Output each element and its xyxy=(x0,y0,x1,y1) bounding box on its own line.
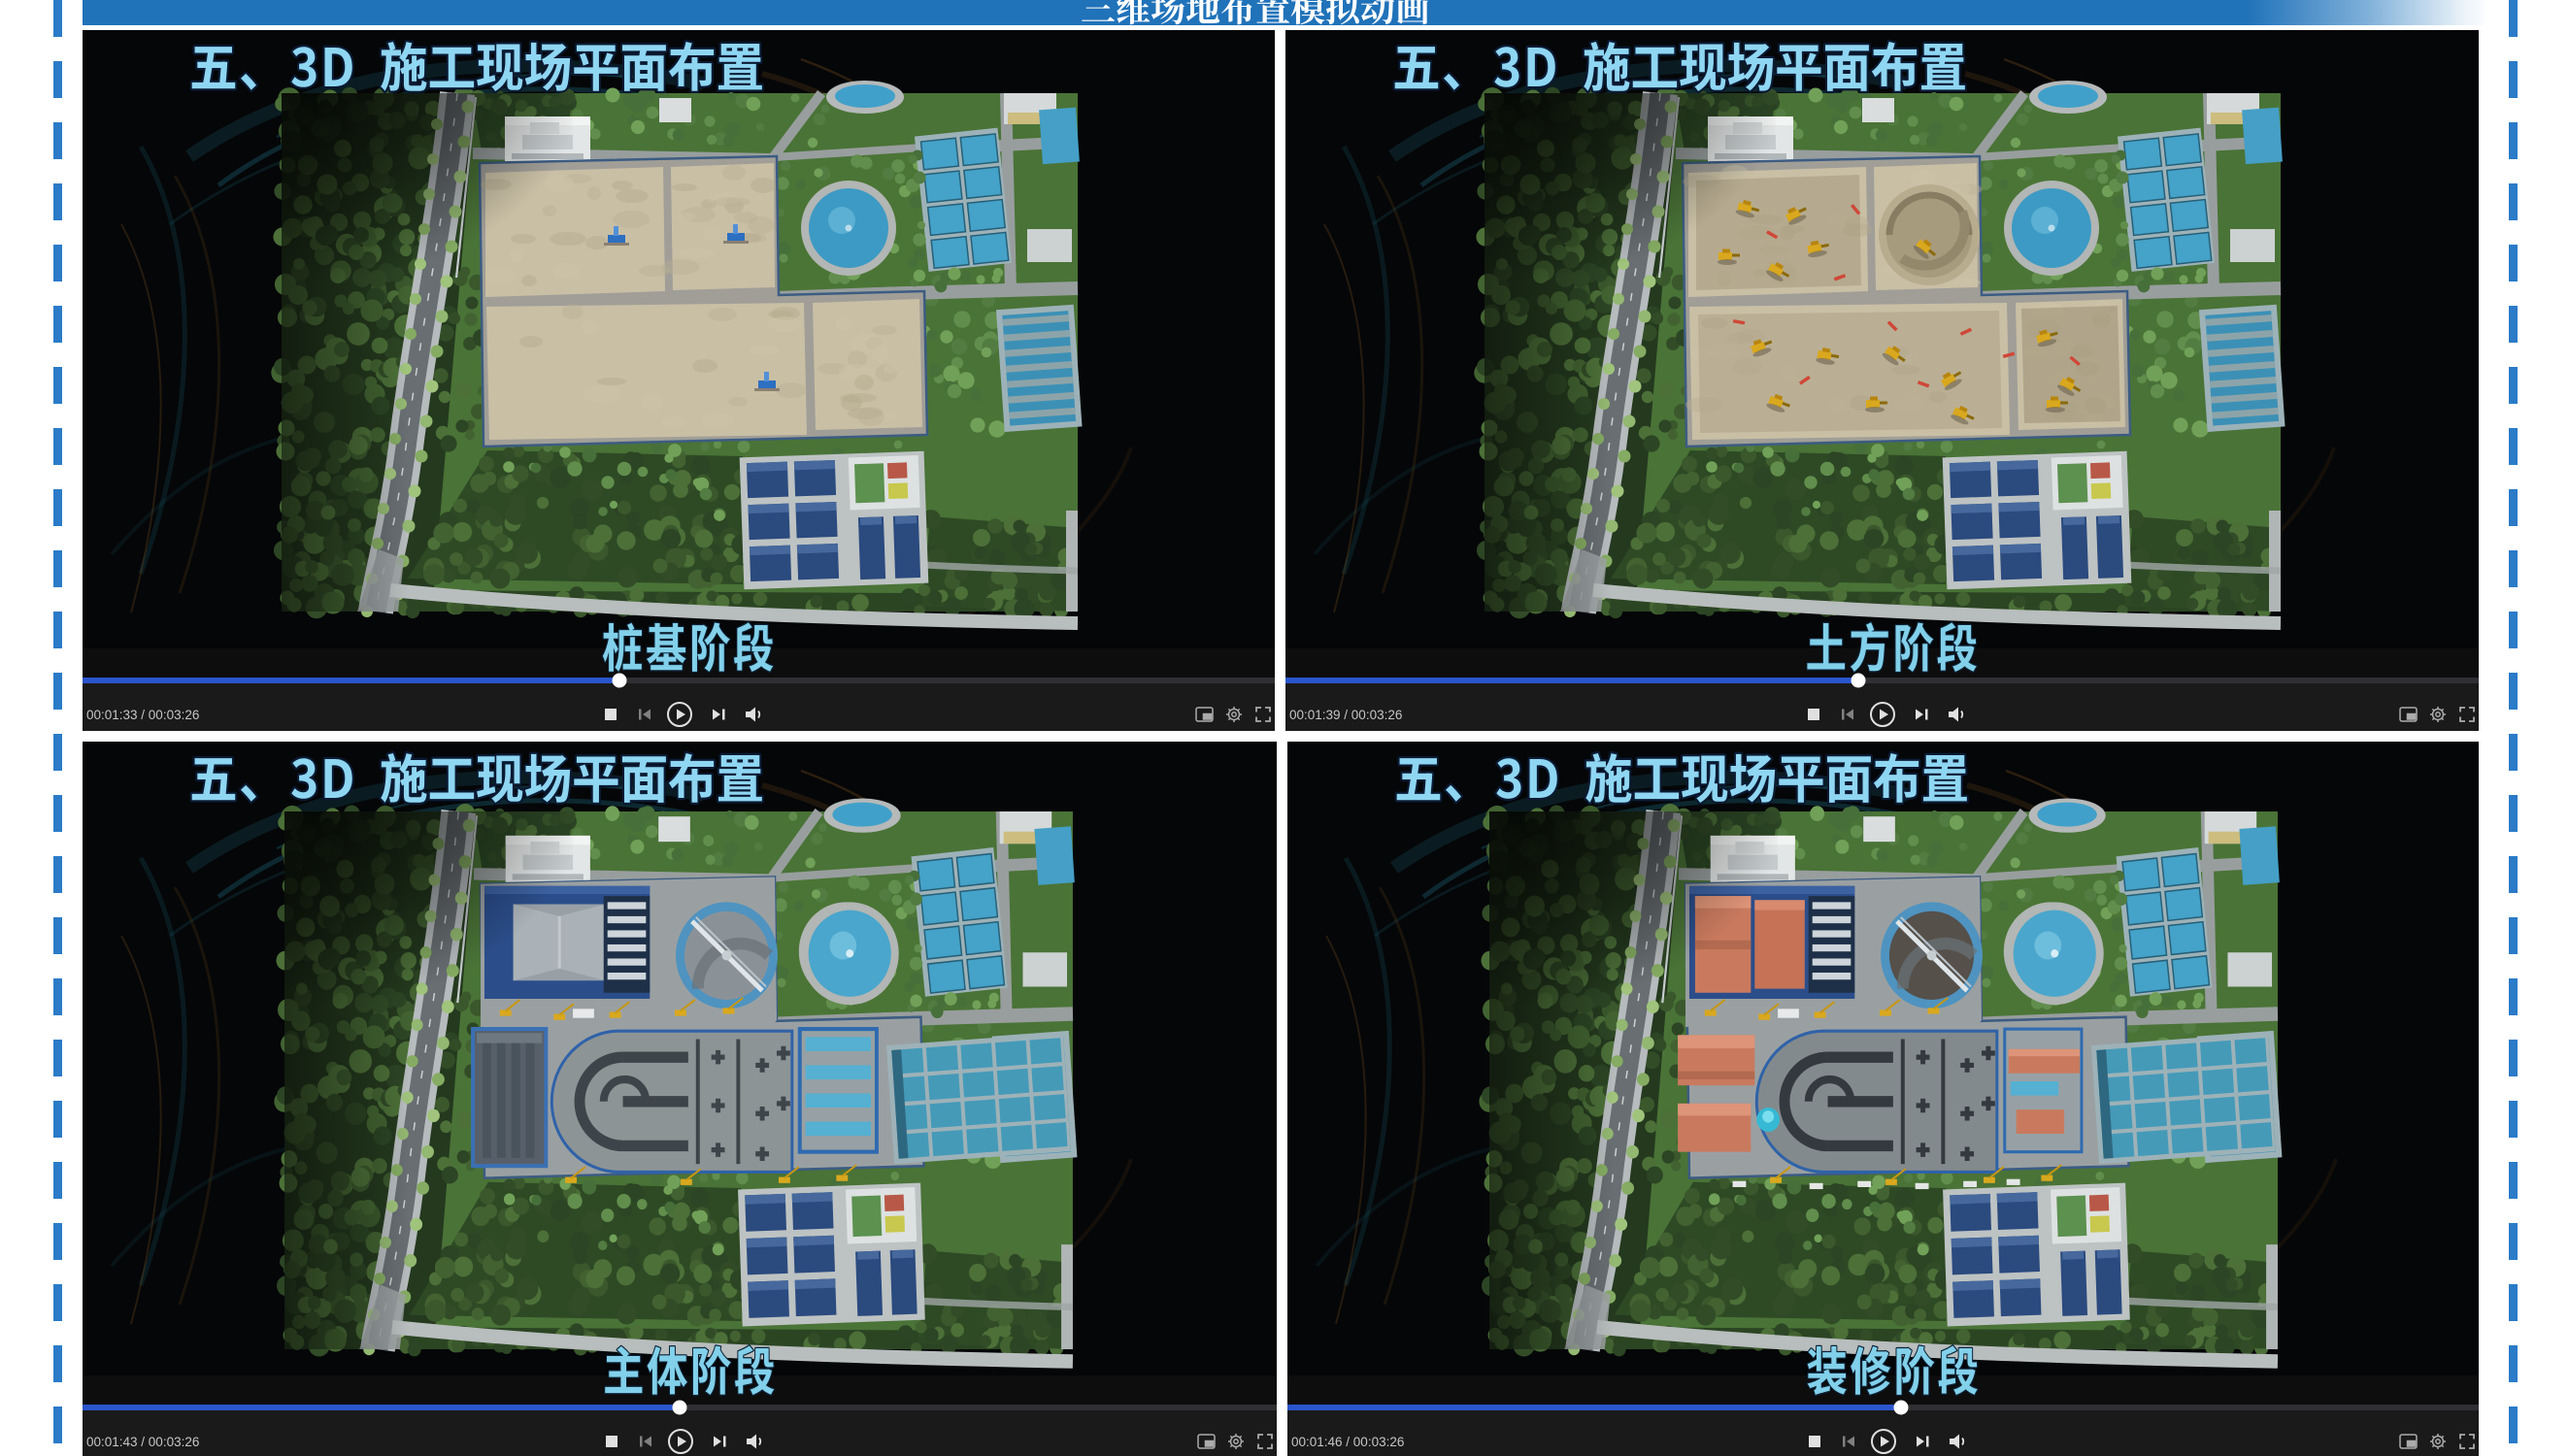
svg-text:00:01:33 / 00:03:26: 00:01:33 / 00:03:26 xyxy=(86,708,199,722)
svg-text:00:01:43 / 00:03:26: 00:01:43 / 00:03:26 xyxy=(86,1435,199,1449)
svg-text:00:01:46 / 00:03:26: 00:01:46 / 00:03:26 xyxy=(1291,1435,1404,1449)
svg-text:00:01:39 / 00:03:26: 00:01:39 / 00:03:26 xyxy=(1289,708,1402,722)
